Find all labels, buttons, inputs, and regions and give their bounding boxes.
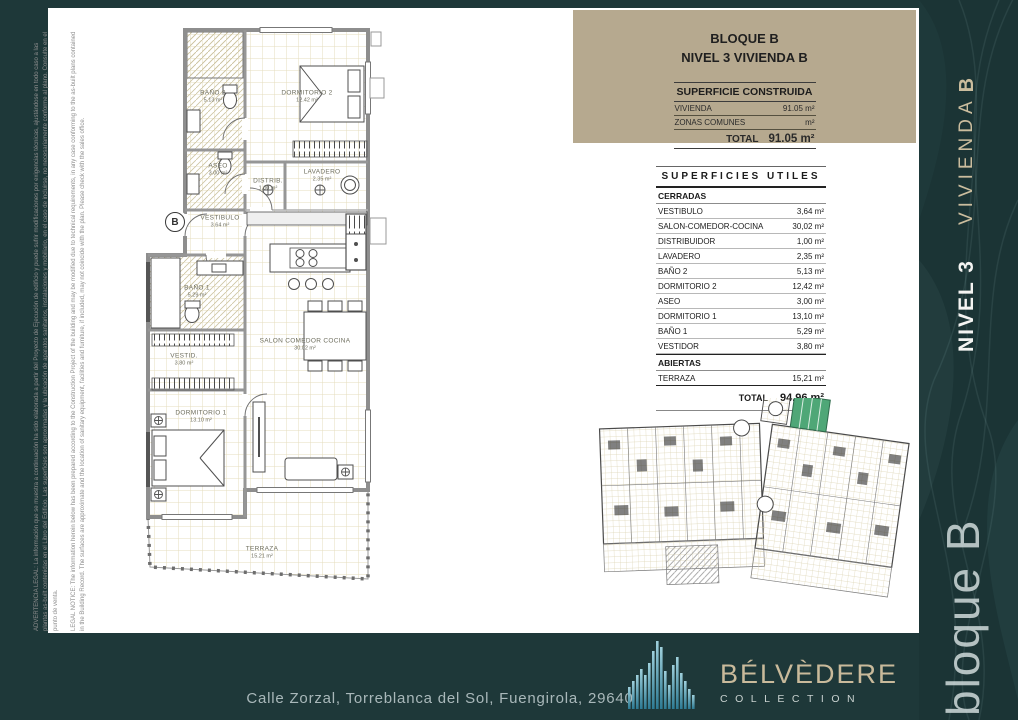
table-row: DORMITORIO 212,42 m² [656,279,826,294]
usable-surfaces-title: SUPERFICIES UTILES [656,166,826,188]
table-row: VIVIENDA 91.05 m² [674,102,816,116]
floor-plan: BAÑO 25.13 m² DORMITORIO 212.42 m² ASEO3… [142,22,398,622]
table-row: LAVADERO2,35 m² [656,249,826,264]
table-row: TERRAZA15,21 m² [656,371,826,386]
room-label: DORMITORIO 113.10 m² [175,410,226,425]
belvedere-bars-icon [628,641,706,709]
table-row: DORMITORIO 113,10 m² [656,309,826,324]
brand-name: BÉLVÈDERE [720,661,898,688]
usable-surfaces-table: SUPERFICIES UTILES CERRADAS VESTIBULO3,6… [656,166,826,411]
room-label: LAVADERO2.35 m² [304,169,341,184]
level-title: NIVEL 3 VIVIENDA B [573,49,916,68]
room-label: BAÑO 15.29 m² [184,285,210,300]
brand-logo: BÉLVÈDERE COLLECTION [628,641,898,709]
key-plan-drawing [594,398,922,605]
room-label: VESTIBULO3.64 m² [200,215,239,230]
built-surface-table: SUPERFICIE CONSTRUIDA VIVIENDA 91.05 m² … [674,82,816,149]
room-label: DISTRIB.1.00 m² [253,178,283,193]
table-row: VESTIDOR3,80 m² [656,339,826,354]
room-label: SALON COMEDOR COCINA30.02 m² [260,338,351,353]
table-row: BAÑO 25,13 m² [656,264,826,279]
unit-letter: B [956,73,979,92]
level-label: NIVEL 3 [955,259,979,352]
table-row: DISTRIBUIDOR1,00 m² [656,234,826,249]
brochure-page: ADVERTENCIA LEGAL: La información que se… [0,0,1018,720]
table-row: SALON-COMEDOR-COCINA30,02 m² [656,219,826,234]
room-label: DORMITORIO 212.42 m² [281,90,332,105]
table-row: VESTIBULO3,64 m² [656,204,826,219]
sidebar-block-text: bloque B [936,371,1000,716]
legal-text-english: LEGAL NOTICE: The information herein bel… [70,31,89,631]
built-surface-total: TOTAL 91.05 m² [674,130,816,149]
group-header: ABIERTAS [656,354,826,371]
brand-subtitle: COLLECTION [720,693,898,705]
table-row: ZONAS COMUNES m² [674,116,816,130]
legal-disclaimer: ADVERTENCIA LEGAL: La información que se… [33,31,85,631]
room-label: VESTID.3.80 m² [170,353,197,368]
floor-plan-drawing [142,22,398,622]
sidebar-level-text: NIVEL 3 VIVIENDA B [947,20,987,352]
legal-text-spanish: ADVERTENCIA LEGAL: La información que se… [33,31,61,631]
room-label: TERRAZA15.21 m² [246,546,278,561]
room-label: BAÑO 25.13 m² [200,90,226,105]
built-surface-title: SUPERFICIE CONSTRUIDA [674,83,816,102]
highlighted-unit [790,398,830,432]
room-label: ASEO3.00 m² [208,163,227,178]
table-row: ASEO3,00 m² [656,294,826,309]
unit-header-box: BLOQUE B NIVEL 3 VIVIENDA B SUPERFICIE C… [573,10,916,143]
group-header: CERRADAS [656,188,826,204]
unit-label: VIVIENDA [956,96,978,225]
key-plan [594,398,922,605]
block-title: BLOQUE B [573,30,916,49]
block-badge: B [165,212,185,232]
table-row: BAÑO 15,29 m² [656,324,826,339]
